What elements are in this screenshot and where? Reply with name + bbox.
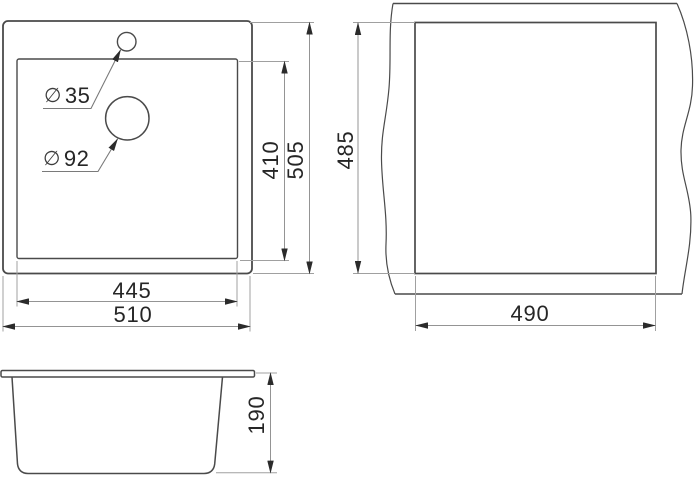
diameter-symbol: ∅ [43, 149, 61, 169]
dim-410-label: 410 [260, 140, 282, 179]
drain-hole-value: 92 [64, 148, 89, 170]
top-view-group [3, 21, 252, 274]
dim-445-label: 445 [112, 280, 151, 302]
faucet-hole-circle [117, 32, 136, 51]
faucet-hole-label: ∅35 [44, 85, 90, 107]
drain-hole-circle [106, 97, 149, 140]
dim-190-label: 190 [246, 395, 268, 434]
cutout-rect [415, 23, 656, 274]
dim-510-label: 510 [113, 304, 152, 326]
sink-bowl-profile [12, 377, 223, 474]
dim-485-label: 485 [335, 130, 357, 169]
cutout-dimension-lines [358, 23, 655, 326]
countertop-right-break-line [677, 4, 693, 295]
sink-rim-profile [1, 371, 255, 378]
dim-505-label: 505 [285, 140, 307, 179]
cutout-view-group [381, 4, 692, 295]
side-view-group [1, 371, 255, 474]
dim-490-label: 490 [510, 303, 549, 325]
drawing-linework [0, 0, 700, 477]
diameter-symbol: ∅ [44, 86, 62, 106]
drain-hole-label: ∅92 [43, 148, 89, 170]
faucet-hole-value: 35 [65, 85, 90, 107]
technical-drawing-canvas: ∅35 ∅92 410 505 445 510 485 490 190 [0, 0, 700, 477]
countertop-left-break-line [381, 4, 395, 295]
cutout-extension-lines [353, 23, 656, 332]
